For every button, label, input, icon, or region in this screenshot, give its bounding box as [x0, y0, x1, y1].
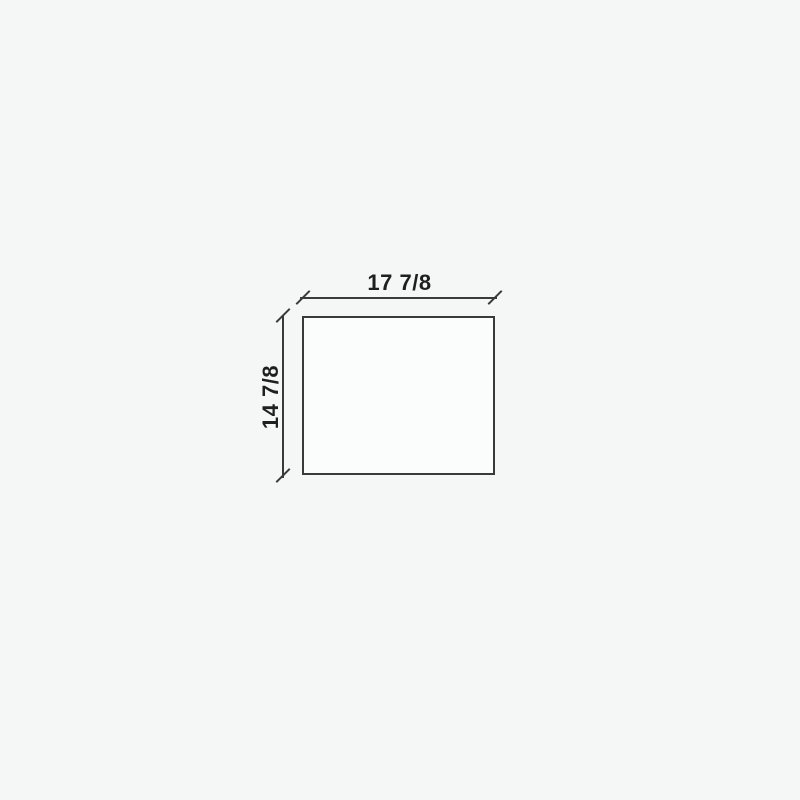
width-dimension-label: 17 7/8 [302, 270, 497, 296]
rectangle-outline [302, 316, 495, 475]
width-dimension-line [300, 297, 497, 299]
drawing-canvas: 17 7/8 14 7/8 [0, 0, 800, 800]
height-dimension-label: 14 7/8 [258, 297, 284, 497]
